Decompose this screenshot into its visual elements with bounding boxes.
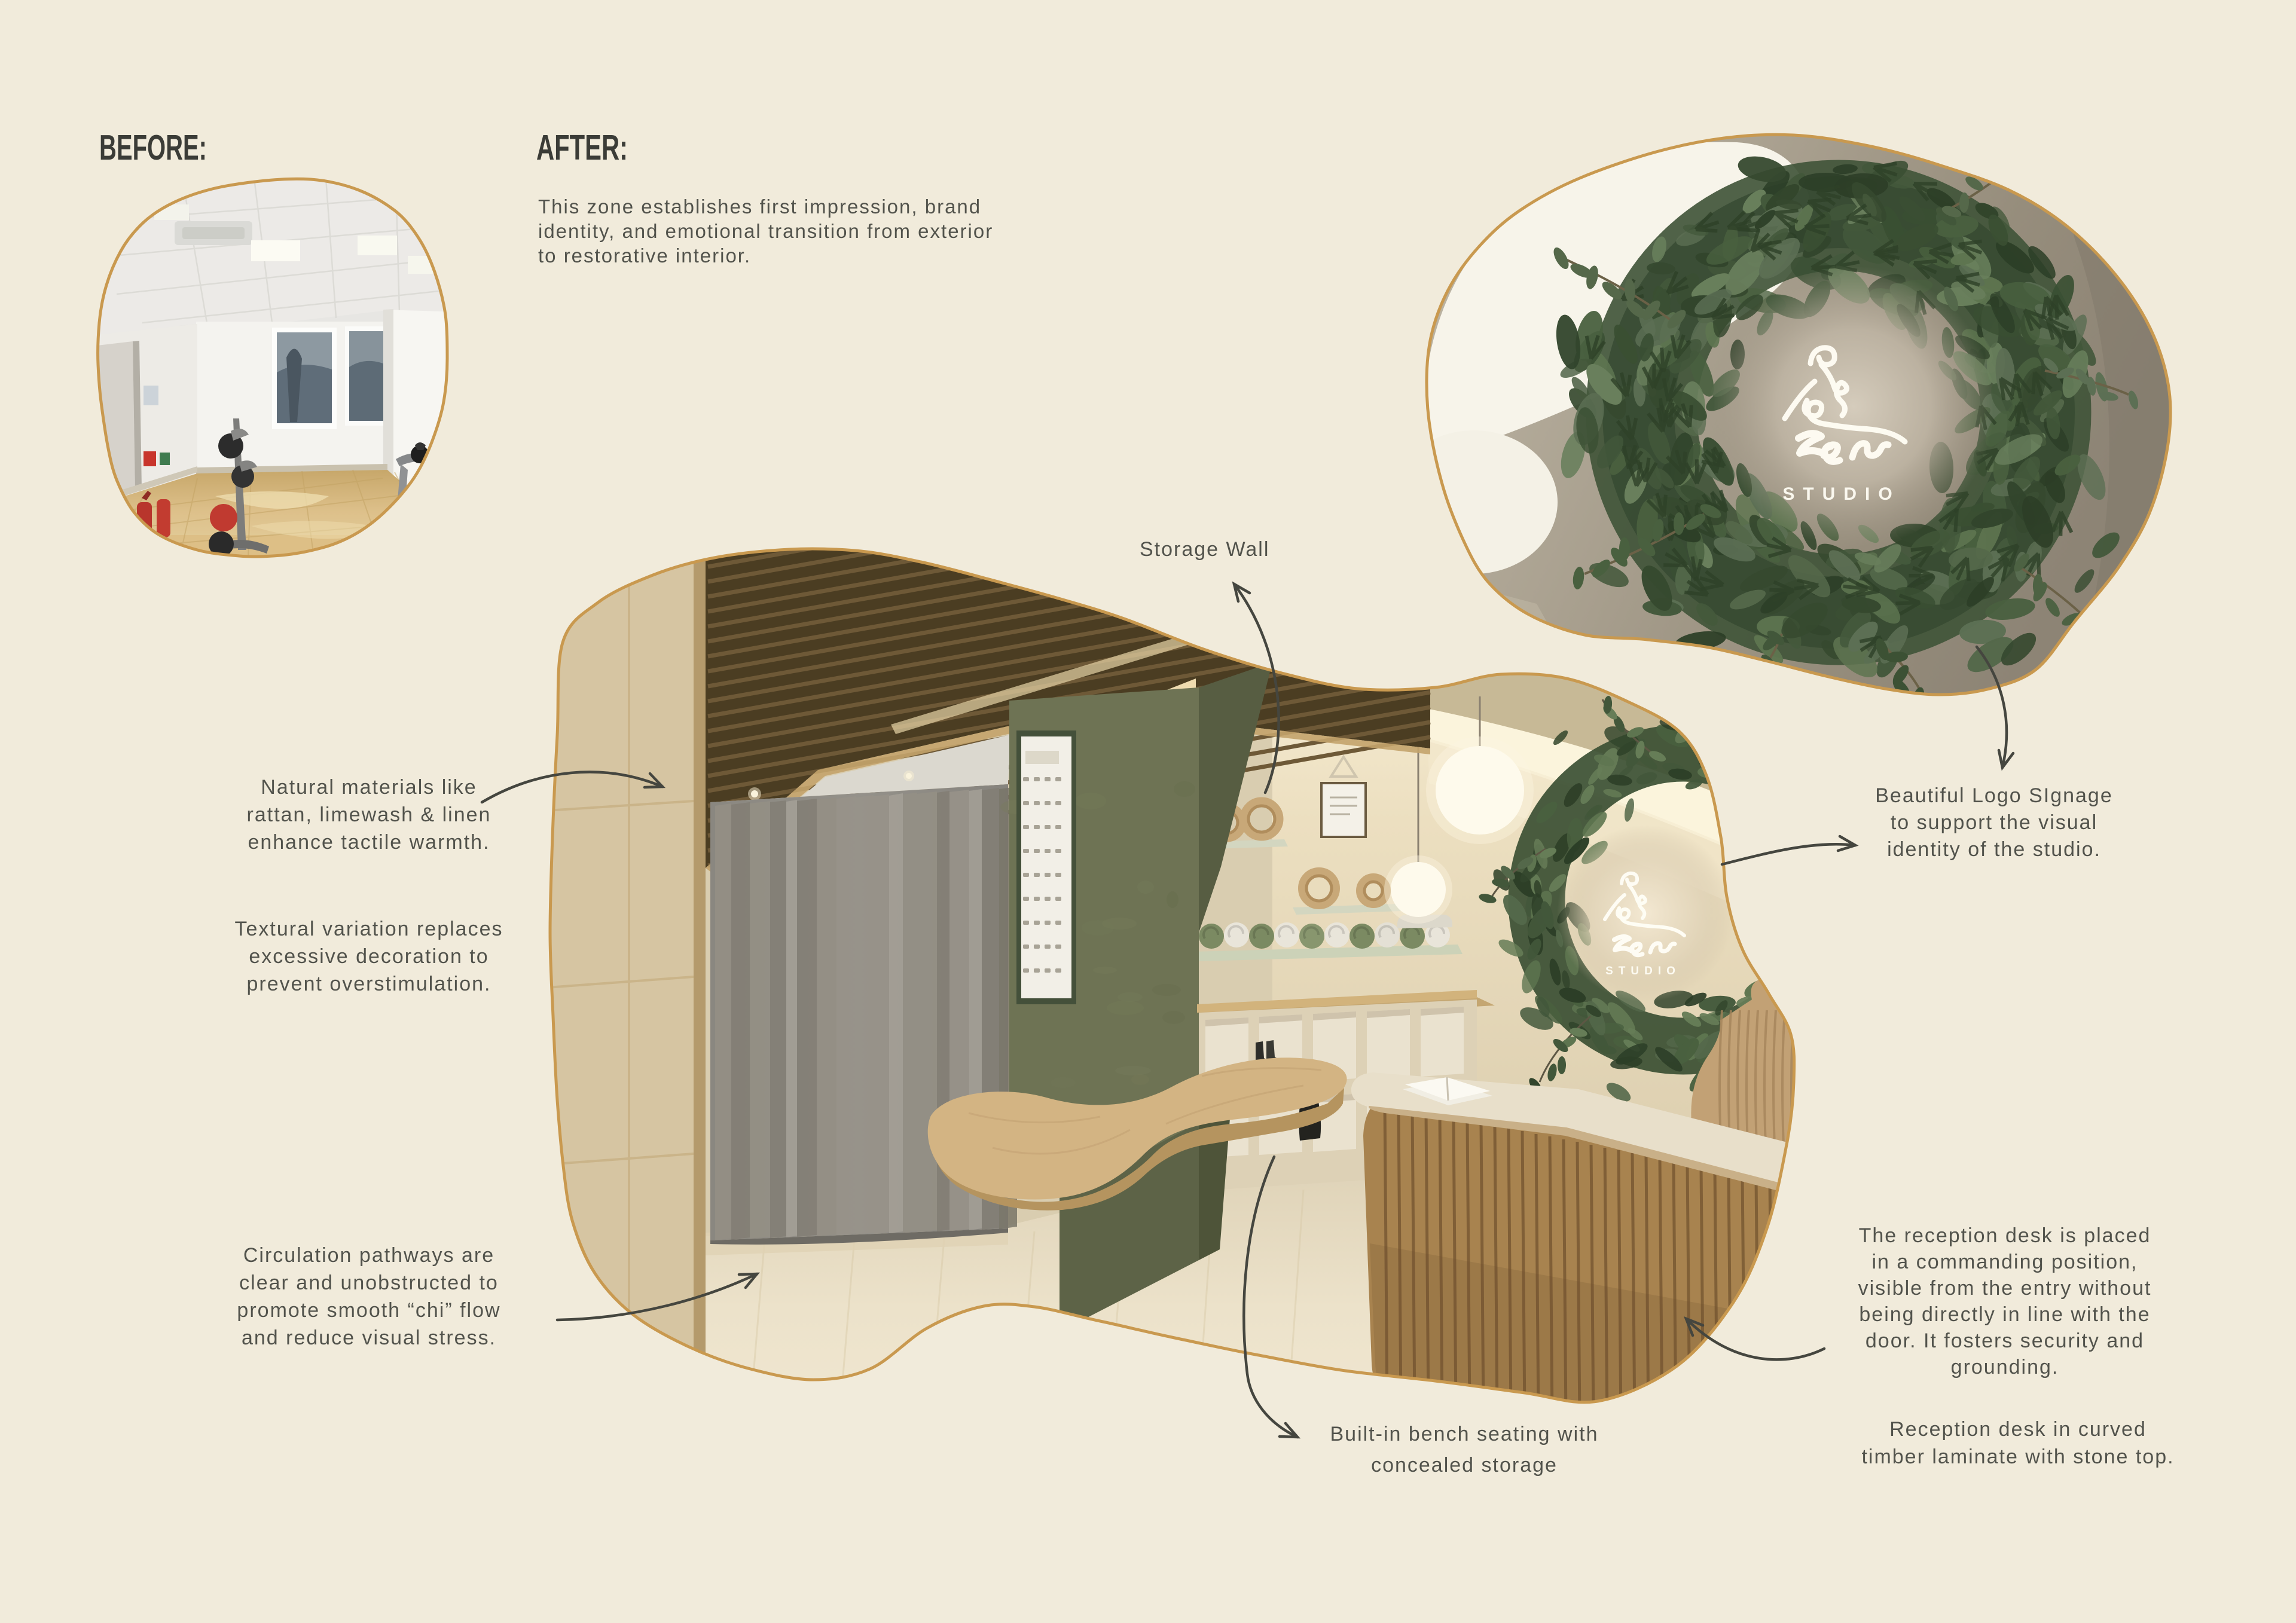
svg-text:Built-in bench seating with: Built-in bench seating with	[1330, 1423, 1598, 1445]
svg-text:promote smooth “chi” flow: promote smooth “chi” flow	[237, 1299, 500, 1322]
svg-text:prevent overstimulation.: prevent overstimulation.	[247, 973, 491, 995]
svg-text:Beautiful Logo SIgnage: Beautiful Logo SIgnage	[1875, 784, 2113, 807]
svg-text:identity of the studio.: identity of the studio.	[1887, 838, 2101, 861]
svg-text:The reception desk is placed: The reception desk is placed	[1859, 1224, 2151, 1247]
svg-text:excessive decoration to: excessive decoration to	[249, 945, 488, 968]
svg-text:STUDIO: STUDIO	[1782, 484, 1900, 504]
svg-text:in a commanding position,: in a commanding position,	[1871, 1251, 2138, 1273]
svg-text:visible from the entry without: visible from the entry without	[1858, 1277, 2152, 1300]
svg-text:grounding.: grounding.	[1951, 1356, 2059, 1379]
svg-text:STUDIO: STUDIO	[1605, 965, 1681, 977]
svg-text:This zone establishes first im: This zone establishes first impression, …	[538, 195, 981, 218]
svg-text:to support the visual: to support the visual	[1891, 811, 2097, 834]
svg-text:BEFORE:: BEFORE:	[99, 128, 207, 167]
svg-text:rattan, limewash & linen: rattan, limewash & linen	[247, 803, 491, 826]
svg-text:concealed storage: concealed storage	[1371, 1454, 1558, 1477]
svg-text:to restorative interior.: to restorative interior.	[538, 244, 751, 267]
svg-text:clear and unobstructed to: clear and unobstructed to	[239, 1271, 499, 1294]
svg-text:being directly in line with th: being directly in line with the	[1859, 1303, 2150, 1326]
svg-text:identity, and emotional transi: identity, and emotional transition from …	[538, 220, 993, 242]
svg-text:Circulation pathways are: Circulation pathways are	[243, 1244, 494, 1267]
svg-text:Natural materials like: Natural materials like	[261, 776, 477, 799]
svg-text:timber laminate with stone top: timber laminate with stone top.	[1861, 1445, 2174, 1468]
svg-text:Textural variation replaces: Textural variation replaces	[235, 918, 503, 940]
svg-text:door. It fosters security and: door. It fosters security and	[1865, 1329, 2144, 1352]
svg-text:enhance tactile warmth.: enhance tactile warmth.	[248, 831, 490, 854]
svg-text:AFTER:: AFTER:	[536, 128, 628, 167]
svg-text:Reception desk in curved: Reception desk in curved	[1889, 1418, 2147, 1441]
svg-text:and reduce visual stress.: and reduce visual stress.	[242, 1326, 496, 1349]
svg-text:Storage Wall: Storage Wall	[1140, 538, 1269, 561]
